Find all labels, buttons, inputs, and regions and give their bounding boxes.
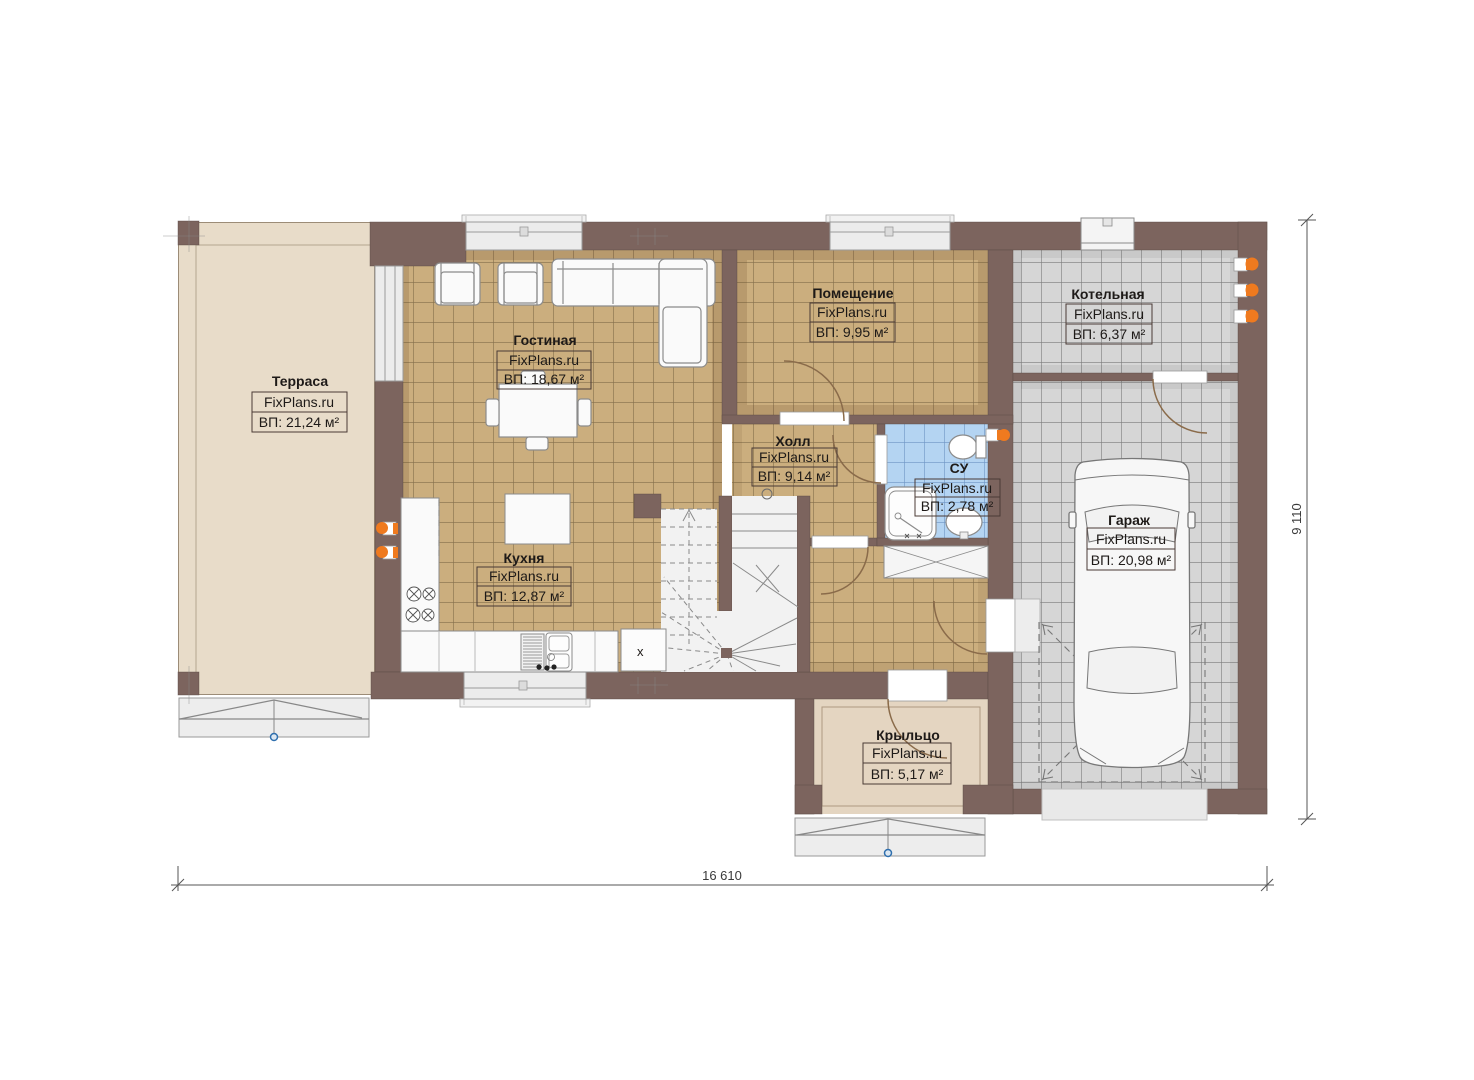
svg-text:Гараж: Гараж <box>1108 512 1151 528</box>
svg-text:16 610: 16 610 <box>702 868 742 883</box>
svg-text:ВП: 9,95 м²: ВП: 9,95 м² <box>816 324 889 340</box>
svg-text:ВП: 9,14 м²: ВП: 9,14 м² <box>758 468 831 484</box>
svg-text:ВП: 6,37 м²: ВП: 6,37 м² <box>1073 326 1146 342</box>
svg-text:Крыльцо: Крыльцо <box>876 727 940 743</box>
svg-text:9 110: 9 110 <box>1289 503 1304 535</box>
svg-text:Гостиная: Гостиная <box>513 332 576 348</box>
svg-text:Холл: Холл <box>775 433 810 449</box>
svg-text:ВП: 12,87 м²: ВП: 12,87 м² <box>484 588 565 604</box>
svg-text:FixPlans.ru: FixPlans.ru <box>509 352 579 368</box>
svg-text:ВП: 5,17 м²: ВП: 5,17 м² <box>871 766 944 782</box>
svg-text:ВП: 20,98 м²: ВП: 20,98 м² <box>1091 552 1172 568</box>
svg-text:СУ: СУ <box>950 460 969 476</box>
svg-text:FixPlans.ru: FixPlans.ru <box>1096 531 1166 547</box>
svg-text:FixPlans.ru: FixPlans.ru <box>759 449 829 465</box>
svg-text:Помещение: Помещение <box>812 285 893 301</box>
svg-text:FixPlans.ru: FixPlans.ru <box>489 568 559 584</box>
svg-text:FixPlans.ru: FixPlans.ru <box>264 394 334 410</box>
svg-text:FixPlans.ru: FixPlans.ru <box>1074 306 1144 322</box>
svg-text:Терраса: Терраса <box>272 373 328 389</box>
svg-text:Кухня: Кухня <box>504 550 545 566</box>
svg-text:ВП: 21,24 м²: ВП: 21,24 м² <box>259 414 340 430</box>
svg-text:ВП: 2,78 м²: ВП: 2,78 м² <box>921 498 994 514</box>
svg-text:Котельная: Котельная <box>1071 286 1144 302</box>
svg-text:ВП: 18,67 м²: ВП: 18,67 м² <box>504 371 585 387</box>
svg-text:FixPlans.ru: FixPlans.ru <box>922 480 992 496</box>
svg-text:FixPlans.ru: FixPlans.ru <box>872 745 942 761</box>
svg-text:x: x <box>637 644 644 659</box>
svg-text:FixPlans.ru: FixPlans.ru <box>817 304 887 320</box>
